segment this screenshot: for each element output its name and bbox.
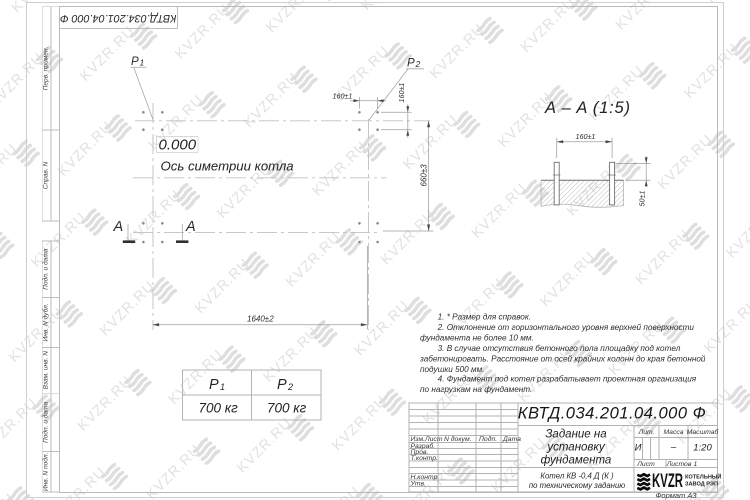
svg-text:Задание на: Задание на xyxy=(545,429,606,441)
svg-text:Перв. примен.: Перв. примен. xyxy=(43,46,50,90)
svg-text:Лит.: Лит. xyxy=(638,429,655,436)
svg-text:660±3: 660±3 xyxy=(420,164,429,187)
svg-text:2: 2 xyxy=(287,382,293,392)
svg-text:Масштаб: Масштаб xyxy=(687,428,720,436)
svg-text:Котел КВ -0,4 Д (К ): Котел КВ -0,4 Д (К ) xyxy=(540,472,614,481)
svg-text:Ось симетрии котла: Ось симетрии котла xyxy=(161,159,294,174)
svg-text:P: P xyxy=(131,56,139,68)
svg-text:2. Отклонение от горизонтально: 2. Отклонение от горизонтального уровня … xyxy=(437,323,695,332)
svg-text:фундамента: фундамента xyxy=(541,455,612,467)
svg-text:N докум.: N докум. xyxy=(444,435,472,443)
svg-text:P: P xyxy=(277,377,287,393)
svg-text:Дата: Дата xyxy=(502,436,521,443)
svg-text:1: 1 xyxy=(220,382,225,392)
svg-text:1. * Размер для справок.: 1. * Размер для справок. xyxy=(438,313,531,322)
svg-text:KVZR: KVZR xyxy=(652,471,683,492)
svg-text:160±1: 160±1 xyxy=(397,83,406,103)
svg-text:по нагрузкам на фундамент.: по нагрузкам на фундамент. xyxy=(420,385,532,394)
svg-text:по техническому заданию: по техническому заданию xyxy=(529,481,625,490)
svg-text:фундамента не более 10 мм.: фундамента не более 10 мм. xyxy=(420,334,534,343)
svg-text:160±1: 160±1 xyxy=(333,91,353,100)
svg-text:подушки 500 мм.: подушки 500 мм. xyxy=(420,365,485,374)
svg-text:700 кг: 700 кг xyxy=(267,401,307,416)
svg-text:0.000: 0.000 xyxy=(159,137,197,154)
svg-text:2: 2 xyxy=(415,59,421,69)
svg-text:Формат А3: Формат А3 xyxy=(655,491,697,500)
svg-text:1:20: 1:20 xyxy=(693,443,712,454)
svg-text:Взам. инв. N: Взам. инв. N xyxy=(43,351,50,390)
svg-text:Т.контр.: Т.контр. xyxy=(411,455,439,462)
svg-text:P: P xyxy=(407,58,415,70)
svg-text:Инв. N дубл.: Инв. N дубл. xyxy=(42,303,50,341)
svg-text:забетонировать. Расстояние от: забетонировать. Расстояние от осей крайн… xyxy=(419,355,706,364)
svg-text:установку: установку xyxy=(546,442,606,454)
svg-text:КВТД.034.201.04.000 Ф: КВТД.034.201.04.000 Ф xyxy=(60,12,177,24)
svg-text:160±1: 160±1 xyxy=(576,132,596,141)
svg-text:И: И xyxy=(635,443,642,454)
svg-text:3. В случае отсутствия бетонно: 3. В случае отсутствия бетонного пола пл… xyxy=(438,344,681,353)
svg-text:1: 1 xyxy=(694,461,698,468)
svg-text:Масса: Масса xyxy=(663,429,683,436)
svg-text:1640±2: 1640±2 xyxy=(247,315,274,324)
svg-text:–: – xyxy=(670,442,677,453)
svg-text:P: P xyxy=(209,377,219,393)
svg-text:Утв.: Утв. xyxy=(410,481,427,488)
svg-text:Лист: Лист xyxy=(636,461,655,468)
svg-text:Подп. и дата: Подп. и дата xyxy=(42,248,50,290)
svg-text:A – A (1:5): A – A (1:5) xyxy=(544,99,631,117)
svg-text:1: 1 xyxy=(140,58,145,68)
svg-text:50±1: 50±1 xyxy=(638,191,647,207)
svg-text:Листов: Листов xyxy=(666,461,692,468)
svg-text:КОТЕЛЬНЫЙ: КОТЕЛЬНЫЙ xyxy=(685,473,721,481)
svg-text:Инв. N подл.: Инв. N подл. xyxy=(42,452,50,491)
svg-text:Подп.: Подп. xyxy=(479,435,497,443)
svg-text:A: A xyxy=(113,219,124,235)
svg-text:ЗАВОД РЭП: ЗАВОД РЭП xyxy=(685,482,718,488)
svg-text:A: A xyxy=(185,219,196,235)
svg-text:Справ. N: Справ. N xyxy=(43,161,50,189)
svg-text:4. Фундамент под котел разраба: 4. Фундамент под котел разрабатывает про… xyxy=(438,375,697,384)
svg-text:Подп. и дата: Подп. и дата xyxy=(42,401,50,443)
svg-text:700 кг: 700 кг xyxy=(199,401,239,416)
svg-text:КВТД.034.201.04.000 Ф: КВТД.034.201.04.000 Ф xyxy=(518,405,706,423)
